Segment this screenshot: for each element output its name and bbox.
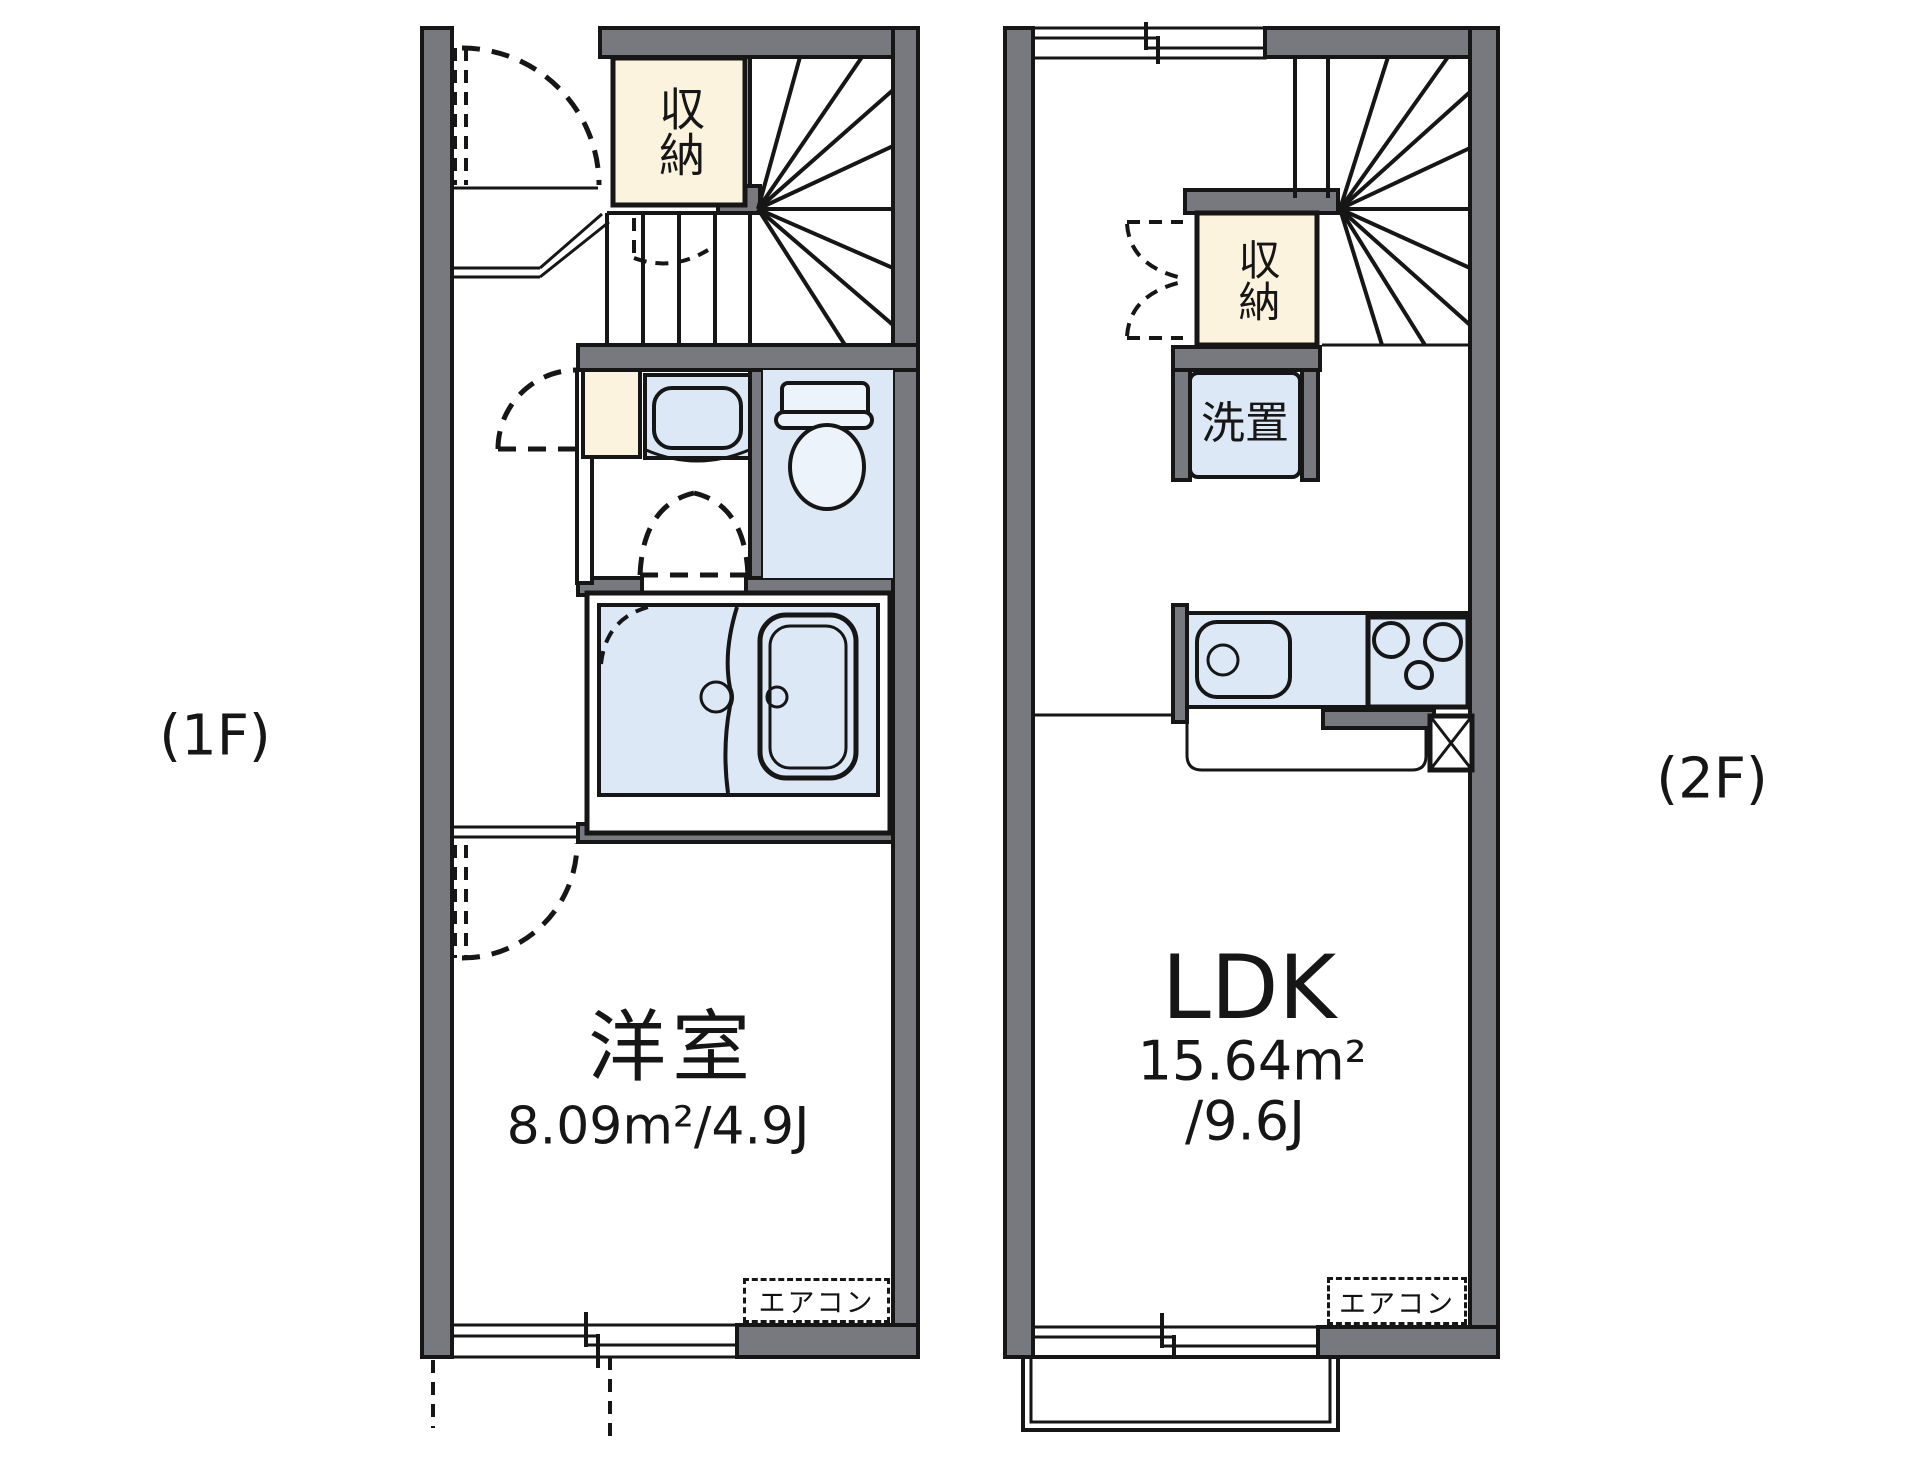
f2-aircon-box: エアコン bbox=[1327, 1277, 1467, 1325]
f1-room-door-swing bbox=[452, 827, 578, 958]
f1-hall-closet-box bbox=[583, 370, 640, 457]
f2-room-area-j: /9.6J bbox=[1185, 1094, 1305, 1151]
floorplan-drawing bbox=[0, 0, 1920, 1459]
f2-pipe-space bbox=[1430, 716, 1472, 770]
floor1-plan bbox=[422, 28, 918, 1442]
f1-closet-label: 収納 bbox=[655, 85, 703, 177]
floor2-label: (2F) bbox=[1656, 751, 1768, 810]
f2-aircon-label: エアコン bbox=[1339, 1282, 1455, 1321]
f2-window-top bbox=[1033, 22, 1265, 64]
f1-aircon-box: エアコン bbox=[743, 1278, 890, 1323]
f2-balcony bbox=[1023, 1357, 1338, 1430]
f1-genkan-lines bbox=[452, 188, 609, 277]
floor1-label: (1F) bbox=[159, 708, 271, 767]
f1-boundary-dashes bbox=[433, 1357, 610, 1442]
f2-kitchen bbox=[1033, 613, 1472, 770]
f2-kitchen-counter bbox=[1187, 613, 1470, 707]
f2-laundry-label: 洗置 bbox=[1201, 401, 1289, 447]
f1-aircon-label: エアコン bbox=[759, 1281, 875, 1320]
f1-room-area: 8.09m²/4.9J bbox=[507, 1100, 810, 1155]
f2-closet-folding-door bbox=[1127, 222, 1183, 338]
f1-entrance-door-swing bbox=[455, 48, 599, 185]
floorplan-canvas: (1F) (2F) 収納 洋室 8.09m²/4.9J エアコン 収納 洗置 L… bbox=[0, 0, 1920, 1459]
f1-bath-unit bbox=[587, 593, 890, 833]
f1-room-name: 洋室 bbox=[588, 1008, 756, 1090]
f1-washroom-folding-door bbox=[640, 493, 748, 575]
f2-room-area-m2: 15.64m² bbox=[1138, 1034, 1367, 1091]
f1-window-bottom bbox=[452, 1312, 737, 1368]
f2-room-name: LDK bbox=[1162, 942, 1337, 1034]
f2-closet-label: 収納 bbox=[1234, 238, 1278, 322]
f1-hall-closet-door-swing bbox=[498, 370, 577, 449]
f1-vanity-icon bbox=[645, 375, 750, 461]
floor2-plan bbox=[1005, 22, 1498, 1430]
